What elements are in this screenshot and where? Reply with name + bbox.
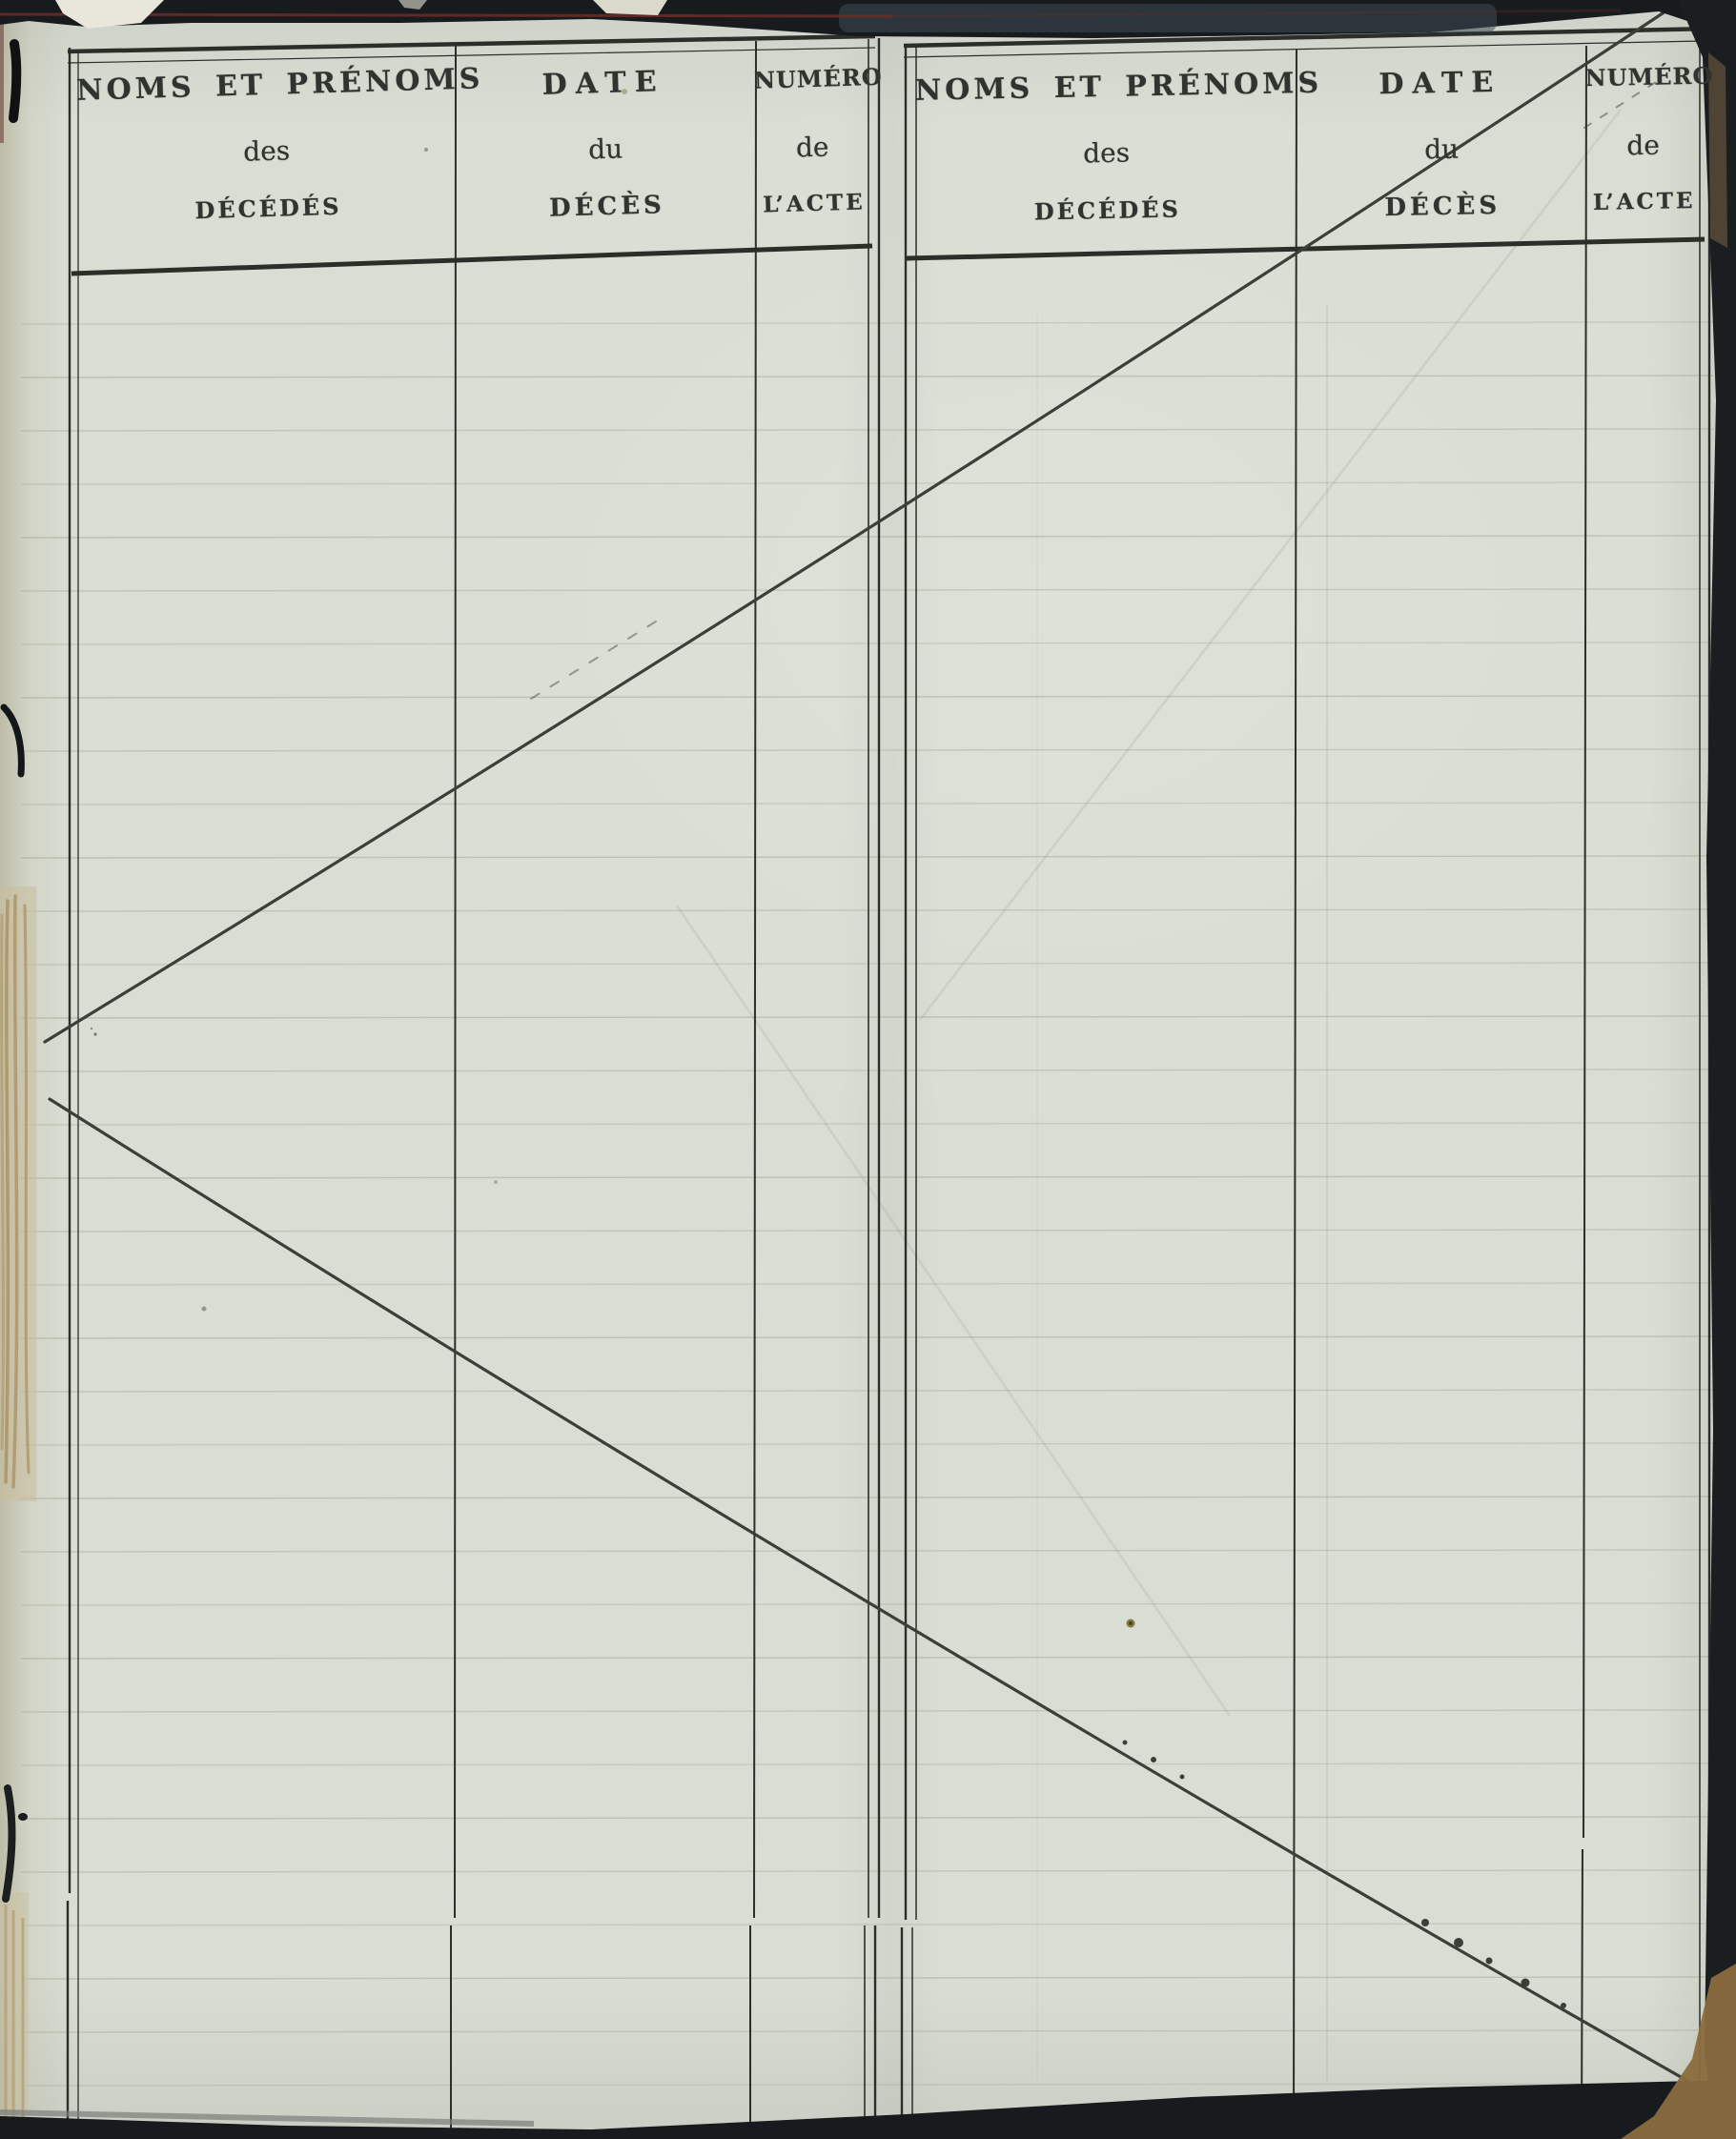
column-title: NUMÉRO: [754, 63, 868, 93]
table-headers: NOMS ET PRÉNOMS des DÉCÉDÉS DATE du DÉCÈ…: [0, 0, 1736, 2139]
column-subtitle2: DÉCÈS: [1297, 190, 1588, 224]
column-subtitle2: DÉCÉDÉS: [80, 189, 458, 228]
scanned-register-page: NOMS ET PRÉNOMS des DÉCÉDÉS DATE du DÉCÈ…: [0, 0, 1736, 2139]
right-col-numero-header: NUMÉRO de L’ACTE: [1584, 33, 1702, 245]
column-title: NOMS ET PRÉNOMS: [76, 63, 454, 108]
column-title: DATE: [454, 62, 754, 104]
column-subtitle2: L’ACTE: [1587, 188, 1701, 215]
column-subtitle: de: [756, 130, 869, 164]
column-title: NOMS ET PRÉNOMS: [915, 67, 1297, 108]
column-subtitle: du: [456, 129, 756, 169]
column-subtitle2: L’ACTE: [758, 189, 871, 217]
column-subtitle2: DÉCÈS: [458, 188, 758, 225]
column-title: DATE: [1295, 64, 1585, 103]
column-subtitle: des: [916, 133, 1297, 173]
right-col-noms-header: NOMS ET PRÉNOMS des DÉCÉDÉS: [914, 38, 1298, 255]
left-col-numero-header: NUMÉRO de L’ACTE: [753, 34, 871, 247]
left-col-noms-header: NOMS ET PRÉNOMS des DÉCÉDÉS: [75, 34, 458, 255]
column-title: NUMÉRO: [1584, 62, 1699, 92]
column-subtitle: du: [1297, 131, 1587, 168]
column-subtitle: de: [1586, 129, 1701, 162]
left-col-date-header: DATE du DÉCÈS: [453, 33, 758, 252]
right-col-date-header: DATE du DÉCÈS: [1295, 35, 1588, 251]
column-subtitle2: DÉCÉDÉS: [917, 193, 1297, 228]
column-subtitle: des: [78, 130, 456, 173]
